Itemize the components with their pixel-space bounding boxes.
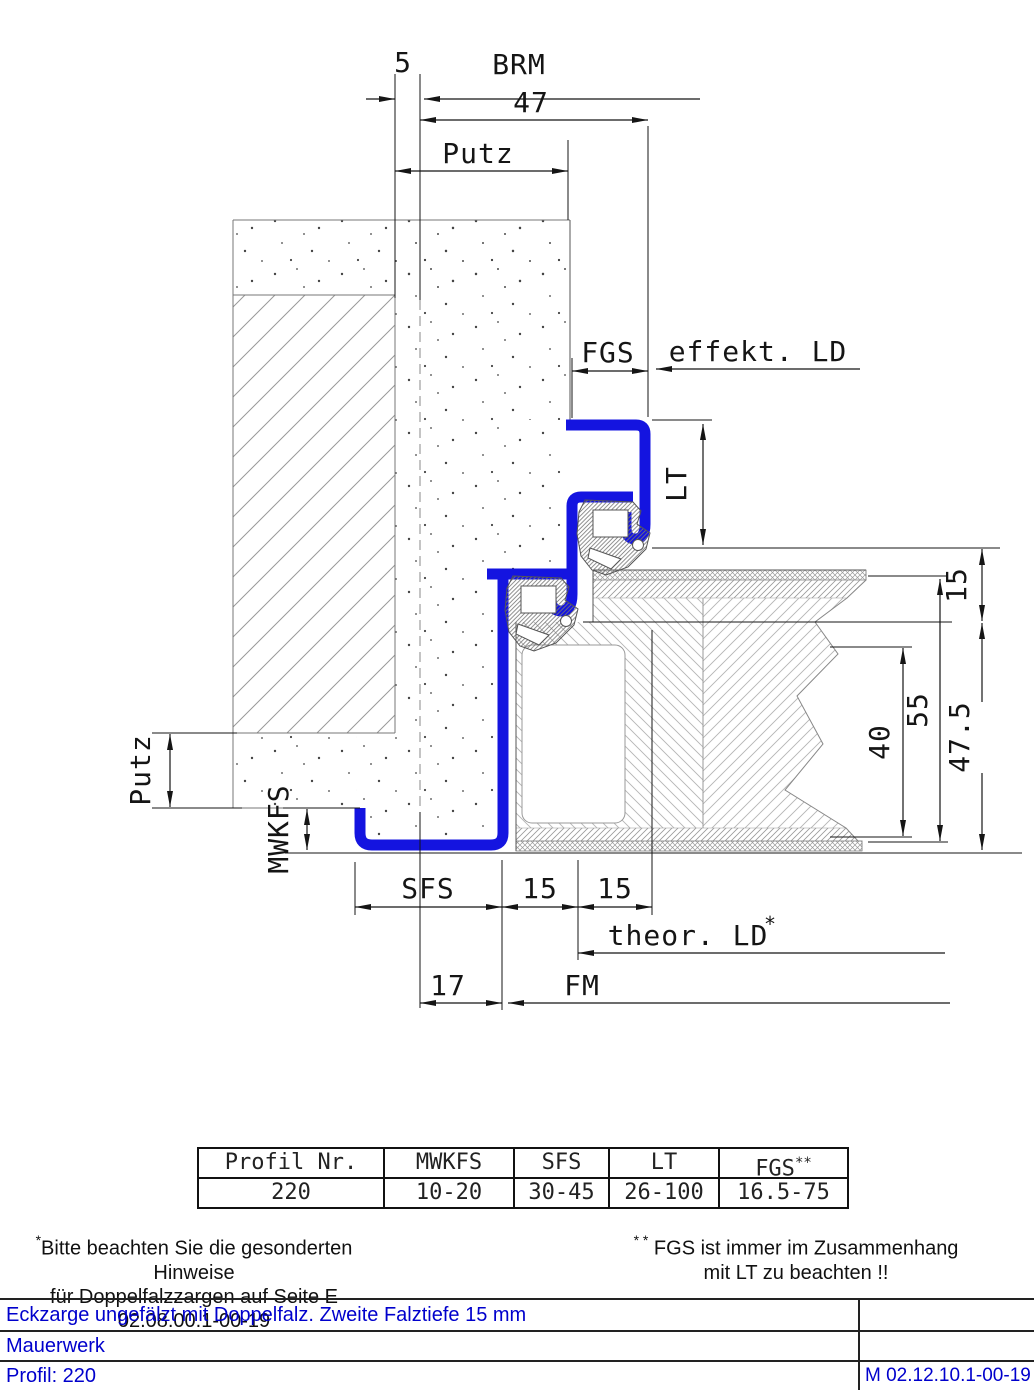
- profile-table-header-row: Profil Nr. MWKFS SFS LT FGS**: [199, 1149, 847, 1179]
- footnote-left-star: *: [36, 1232, 41, 1248]
- document-number: M 02.12.10.1-00-19: [858, 1362, 1034, 1390]
- wall-type-label: Mauerwerk: [0, 1332, 858, 1360]
- footnote-right-line1: * * FGS ist immer im Zusammenhang: [600, 1230, 992, 1261]
- profile-table: Profil Nr. MWKFS SFS LT FGS** 220 10-20 …: [197, 1147, 849, 1209]
- table-value-mwkfs: 10-20: [385, 1179, 515, 1207]
- profile-table-value-row: 220 10-20 30-45 26-100 16.5-75: [199, 1179, 847, 1207]
- dim-17-label: 17: [430, 969, 466, 1002]
- technical-drawing: 5 BRM 47 Putz FGS effekt. LD LT 15 47.5 …: [0, 0, 1034, 1120]
- seal-upper: [577, 500, 650, 575]
- table-header-mwkfs: MWKFS: [385, 1149, 515, 1177]
- title-block-row1-right: [858, 1300, 1034, 1330]
- title-block-row1: Eckzarge ungefälzt mit Doppelfalz. Zweit…: [0, 1298, 1034, 1330]
- dim-5-label: 5: [394, 46, 412, 79]
- title-block-row2-right: [858, 1332, 1034, 1360]
- dim-47-5-label: 47.5: [943, 701, 976, 772]
- dim-putz-left-label: Putz: [124, 734, 157, 805]
- dim-fm-label: FM: [564, 969, 600, 1002]
- table-header-fgs: FGS**: [720, 1149, 847, 1177]
- table-value-lt: 26-100: [610, 1179, 720, 1207]
- table-value-profil-nr: 220: [199, 1179, 385, 1207]
- title-block-row3: Profil: 220 M 02.12.10.1-00-19: [0, 1360, 1034, 1390]
- dim-40-label: 40: [863, 724, 896, 760]
- title-block: Eckzarge ungefälzt mit Doppelfalz. Zweit…: [0, 1298, 1034, 1390]
- dim-effekt-ld-label: effekt. LD: [669, 335, 848, 368]
- drawing-title: Eckzarge ungefälzt mit Doppelfalz. Zweit…: [0, 1300, 858, 1330]
- wall-masonry-hatch: [233, 295, 395, 733]
- footnote-right-text1: FGS ist immer im Zusammenhang: [654, 1238, 959, 1260]
- leaf-groove: [522, 645, 625, 823]
- dim-55-label: 55: [901, 692, 934, 728]
- dim-15b-label: 15: [597, 872, 633, 905]
- footnote-right-line2: mit LT zu beachten !!: [600, 1261, 992, 1285]
- dim-theor-ld-star: *: [764, 912, 776, 936]
- dim-15-right-label: 15: [940, 567, 973, 603]
- footnote-left-line1: *Bitte beachten Sie die gesonderten Hinw…: [0, 1230, 388, 1285]
- drawing-sheet: 5 BRM 47 Putz FGS effekt. LD LT 15 47.5 …: [0, 0, 1034, 1390]
- footnote-right-star: * *: [634, 1232, 649, 1248]
- table-header-fgs-text: FGS: [755, 1156, 795, 1177]
- title-block-row2: Mauerwerk: [0, 1330, 1034, 1360]
- table-header-sfs: SFS: [515, 1149, 610, 1177]
- dim-fgs-label: FGS: [581, 336, 635, 369]
- dim-mwkfs-label: MWKFS: [262, 784, 295, 873]
- dim-47-label: 47: [513, 86, 549, 119]
- dim-sfs-label: SFS: [401, 872, 455, 905]
- dim-15a-label: 15: [522, 872, 558, 905]
- dim-theor-ld-label: theor. LD: [608, 919, 769, 952]
- footnote-right: * * FGS ist immer im Zusammenhang mit LT…: [600, 1230, 992, 1285]
- table-header-profil-nr: Profil Nr.: [199, 1149, 385, 1177]
- dim-lt-label: LT: [660, 466, 693, 502]
- table-header-fgs-sup: **: [795, 1155, 812, 1171]
- table-header-lt: LT: [610, 1149, 720, 1177]
- dim-brm-label: BRM: [492, 48, 546, 81]
- footnote-left-text1: Bitte beachten Sie die gesonderten Hinwe…: [41, 1238, 352, 1284]
- dim-putz-top-label: Putz: [442, 137, 513, 170]
- table-value-sfs: 30-45: [515, 1179, 610, 1207]
- table-value-fgs: 16.5-75: [720, 1179, 847, 1207]
- profile-number-label: Profil: 220: [0, 1362, 858, 1390]
